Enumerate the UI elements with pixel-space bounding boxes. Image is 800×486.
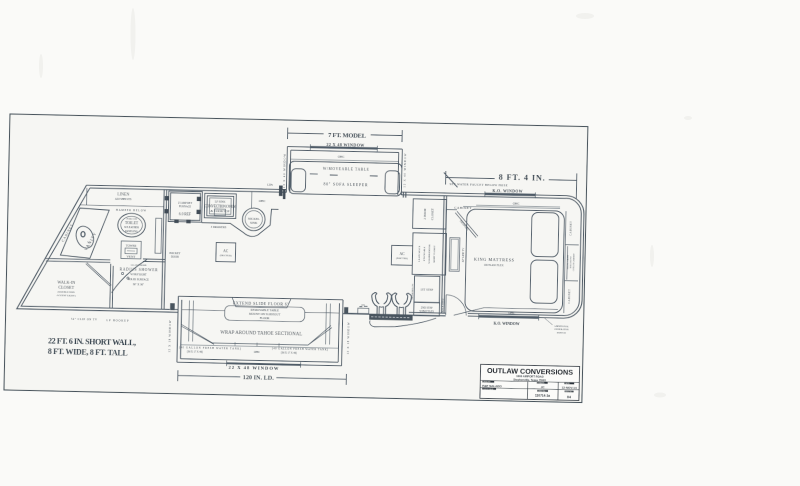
svg-text:(DUCTED): (DUCTED) (220, 254, 232, 257)
svg-text:CLOSET: CLOSET (430, 208, 434, 220)
svg-text:OHC: OHC (508, 311, 515, 315)
svg-text:7 FT. MODEL: 7 FT. MODEL (328, 132, 367, 140)
svg-text:SOLID SURFACE: SOLID SURFACE (128, 278, 150, 281)
svg-text:36" X 36": 36" X 36" (133, 283, 144, 286)
svg-text:12-NOV-14: 12-NOV-14 (562, 386, 577, 390)
svg-text:VENT: VENT (126, 254, 136, 258)
svg-text:AC: AC (223, 249, 229, 253)
svg-text:OHC: OHC (338, 155, 345, 159)
svg-text:W/BOTTLES: W/BOTTLES (419, 310, 434, 313)
svg-text:6.0 REF: 6.0 REF (179, 212, 191, 216)
svg-text:PANELING: PANELING (125, 230, 138, 233)
svg-text:W/LEATHER: W/LEATHER (124, 226, 139, 229)
svg-text:CABINET: CABINET (454, 206, 472, 210)
svg-text:TOILET: TOILET (125, 221, 139, 225)
svg-text:WASHER/DRYER: WASHER/DRYER (428, 244, 431, 264)
svg-text:120 IN. LD.: 120 IN. LD. (243, 375, 275, 382)
svg-text:CABINET: CABINET (568, 289, 571, 304)
svg-text:ACCENT LIGHT): ACCENT LIGHT) (57, 294, 76, 297)
svg-text:OHC: OHC (259, 199, 266, 203)
svg-text:22 FT. 6 IN. SHORT WALL,: 22 FT. 6 IN. SHORT WALL, (48, 336, 136, 347)
svg-text:LINEN: LINEN (117, 191, 129, 196)
svg-text:42" LED TV: 42" LED TV (462, 248, 465, 263)
svg-text:CUSTOMER: CUSTOMER (483, 389, 494, 391)
svg-text:1ST STEP: 1ST STEP (420, 288, 433, 292)
svg-text:OUTLAW FLEX: OUTLAW FLEX (484, 264, 504, 267)
svg-text:LP HOOKUP: LP HOOKUP (106, 319, 129, 322)
svg-text:SINK: SINK (250, 221, 258, 225)
svg-text:(36 X 17 X 46): (36 X 17 X 46) (187, 351, 203, 354)
svg-text:DOOR: DOOR (171, 256, 179, 259)
svg-text:REV NO: REV NO (565, 391, 573, 393)
svg-text:OUTLET CABINET: OUTLET CABINET (572, 253, 575, 271)
svg-text:04: 04 (567, 395, 571, 399)
svg-text:P&P SALADO: P&P SALADO (482, 384, 502, 388)
svg-text:KING MATTRESS: KING MATTRESS (474, 257, 515, 263)
svg-text:8 FT. WIDE, 8 FT. TALL: 8 FT. WIDE, 8 FT. TALL (48, 347, 128, 358)
svg-text:FURNACE: FURNACE (179, 205, 192, 208)
svg-text:STACKABLE: STACKABLE (423, 246, 426, 261)
svg-text:W/SKYLIGHT: W/SKYLIGHT (130, 273, 147, 276)
svg-text:SHIRT CLOSET: SHIRT CLOSET (433, 245, 436, 263)
svg-text:FLOOR: FLOOR (260, 316, 270, 320)
svg-text:(DUCTED): (DUCTED) (396, 257, 408, 260)
svg-text:110714-1a: 110714-1a (535, 394, 550, 398)
svg-text:(36 X 17 X 46): (36 X 17 X 46) (281, 352, 297, 355)
svg-text:RADIUS SHOWER: RADIUS SHOWER (120, 267, 159, 272)
svg-text:ADJ SHELVES: ADJ SHELVES (115, 198, 132, 201)
svg-text:3 DRAWERS: 3 DRAWERS (211, 226, 227, 229)
svg-text:LP SINK: LP SINK (215, 199, 227, 203)
svg-text:120v: 120v (267, 183, 274, 187)
svg-text:SHELVES W/: SHELVES W/ (570, 256, 572, 268)
svg-text:GLASS DOOR: GLASS DOOR (131, 264, 147, 267)
svg-text:LEAVE SPACE: LEAVE SPACE (418, 245, 421, 262)
svg-text:OHC: OHC (513, 202, 520, 206)
svg-text:& COOKTOP: & COOKTOP (210, 209, 229, 213)
svg-text:BRONC CROSS: BRONC CROSS (567, 254, 569, 269)
svg-text:AC: AC (399, 252, 405, 256)
svg-text:OHC: OHC (254, 350, 260, 354)
svg-text:52" CLIP ON TV: 52" CLIP ON TV (71, 318, 97, 322)
svg-text:8 FT. 4 IN.: 8 FT. 4 IN. (499, 172, 545, 182)
svg-text:CLOSET: CLOSET (58, 284, 74, 289)
svg-text:K.O. WINDOW: K.O. WINDOW (492, 189, 522, 194)
svg-text:CABINET: CABINET (569, 221, 572, 236)
svg-text:2 DOOR: 2 DOOR (423, 208, 427, 220)
svg-text:TRASH BELOW: TRASH BELOW (411, 283, 414, 300)
svg-text:TOWER: TOWER (126, 244, 137, 248)
svg-text:SWITCH: SWITCH (557, 331, 567, 334)
svg-text:K.O. WINDOW: K.O. WINDOW (494, 321, 520, 326)
